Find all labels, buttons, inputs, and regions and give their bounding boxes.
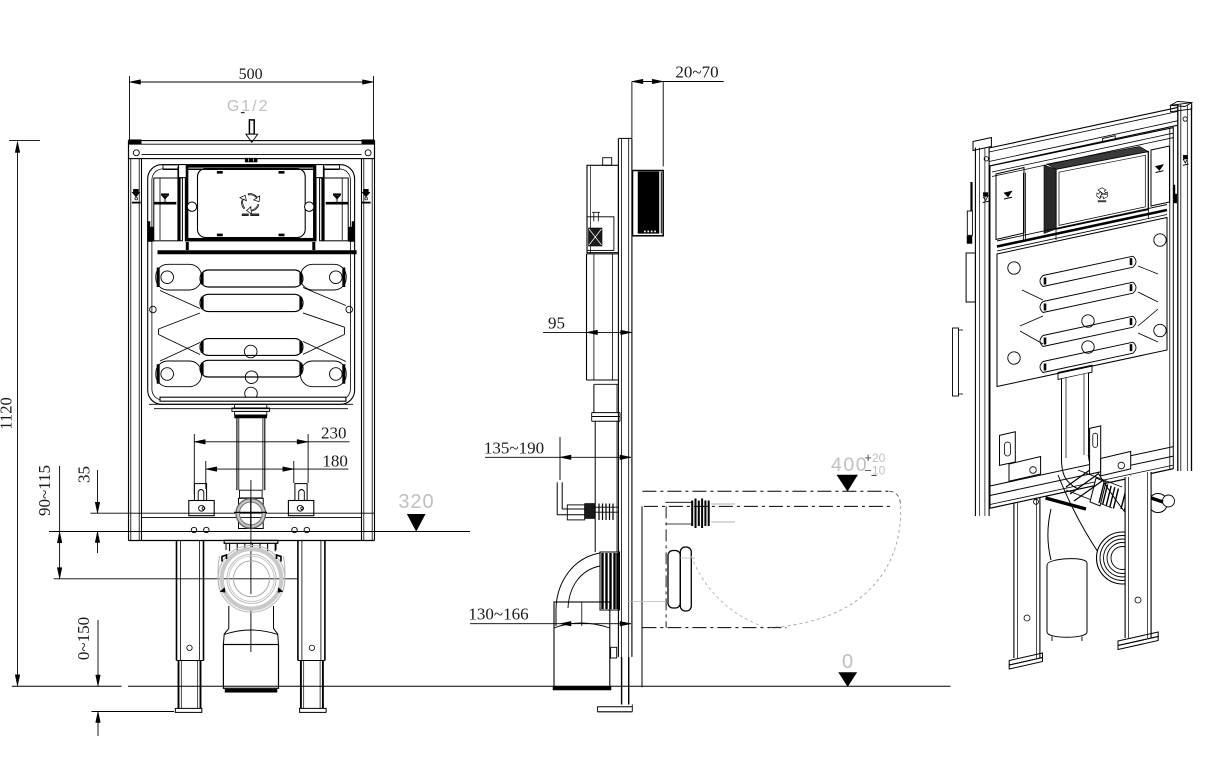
svg-text:130~166: 130~166	[468, 605, 528, 624]
svg-text:35: 35	[75, 466, 94, 483]
svg-text:−: −	[865, 464, 872, 478]
svg-text:400: 400	[831, 454, 868, 476]
svg-text:135~190: 135~190	[484, 439, 544, 458]
svg-text:G1/2: G1/2	[227, 98, 270, 115]
svg-text:90~115: 90~115	[35, 465, 54, 516]
svg-text:230: 230	[321, 423, 347, 442]
svg-text:1120: 1120	[0, 397, 16, 429]
svg-text:95: 95	[548, 314, 565, 333]
svg-text:320: 320	[398, 491, 434, 513]
svg-text:20~70: 20~70	[675, 63, 718, 82]
svg-text:0~150: 0~150	[74, 617, 93, 660]
svg-text:0: 0	[842, 651, 853, 673]
svg-text:180: 180	[322, 451, 348, 470]
svg-text:500: 500	[239, 66, 263, 83]
